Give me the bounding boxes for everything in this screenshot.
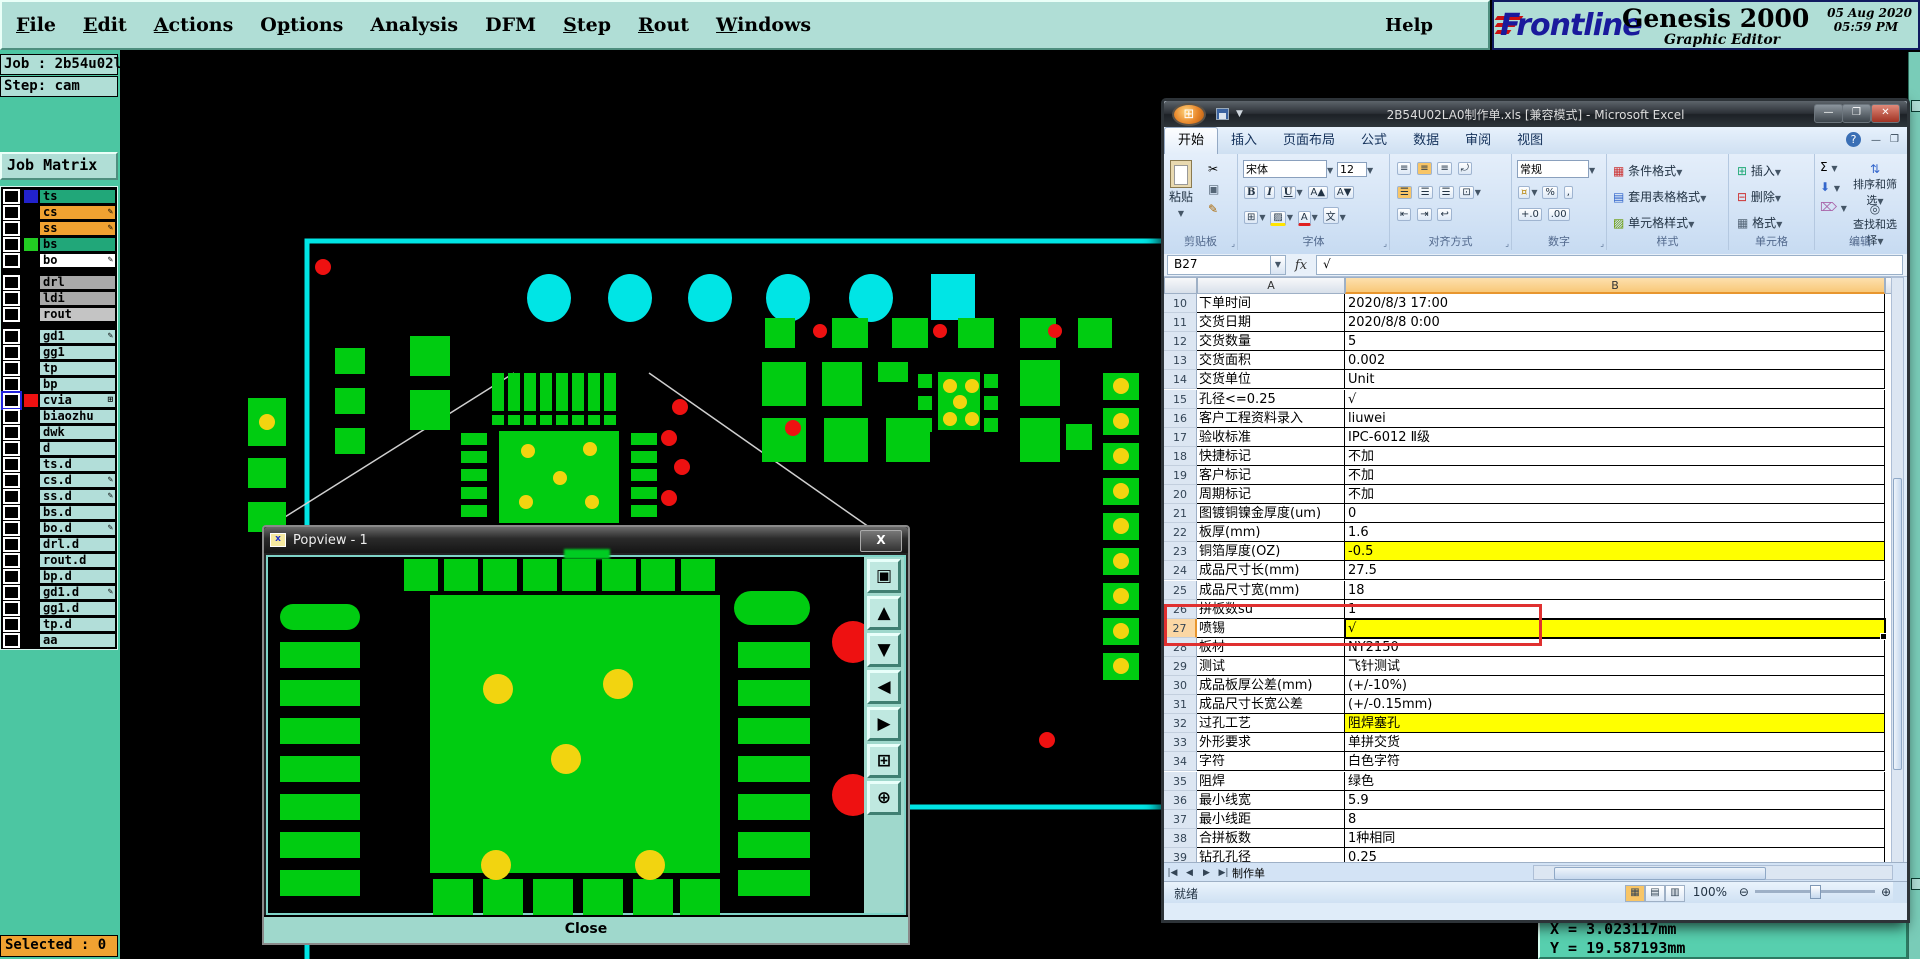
layer-swatch[interactable]	[24, 238, 38, 251]
cell-a21[interactable]: 图镀铜镍金厚度(um)	[1197, 504, 1345, 523]
comma-icon[interactable]: ,	[1564, 186, 1573, 199]
layer-checkbox[interactable]	[3, 473, 20, 488]
layer-name[interactable]: gd1.d✎	[39, 585, 116, 600]
layer-checkbox[interactable]	[3, 329, 20, 344]
layer-checkbox[interactable]	[3, 237, 20, 252]
layer-row-bp: bp	[1, 376, 117, 392]
cell-b21[interactable]: 0	[1345, 504, 1885, 523]
cell-b36[interactable]: 5.9	[1345, 791, 1885, 810]
italic-icon[interactable]: I	[1264, 186, 1275, 199]
tab-数据[interactable]: 数据	[1400, 128, 1452, 154]
popview-window: x Popview - 1 X	[262, 525, 910, 945]
align-middle-icon[interactable]: ≡	[1417, 162, 1431, 175]
frontline-brand: Frontline	[1500, 8, 1642, 43]
cell-b14[interactable]: Unit	[1345, 370, 1885, 389]
layer-swatch[interactable]	[24, 378, 38, 391]
layer-swatch[interactable]	[24, 506, 38, 519]
cell-b38[interactable]: 1种相同	[1345, 829, 1885, 848]
merge-center-icon[interactable]: ⊡	[1459, 186, 1473, 199]
cell-a16[interactable]: 客户工程资料录入	[1197, 409, 1345, 428]
row-header[interactable]: 10	[1164, 294, 1197, 313]
name-box-dropdown-icon[interactable]: ▼	[1271, 255, 1286, 275]
menu-options[interactable]: Options	[260, 14, 343, 36]
layer-row-ss: ss✎	[1, 220, 117, 236]
layer-name[interactable]: gg1.d	[39, 601, 116, 616]
layer-row-cs: cs✎	[1, 204, 117, 220]
row-header[interactable]: 33	[1164, 733, 1197, 752]
menu-windows[interactable]: Windows	[716, 14, 811, 36]
layer-row-aa: aa	[1, 632, 117, 648]
cell-a14[interactable]: 交货单位	[1197, 370, 1345, 389]
layer-swatch[interactable]	[24, 222, 38, 235]
cell-a13[interactable]: 交货面积	[1197, 351, 1345, 370]
cell-b31[interactable]: (+/-0.15mm)	[1345, 695, 1885, 714]
layer-checkbox[interactable]	[3, 553, 20, 568]
layer-checkbox[interactable]	[3, 489, 20, 504]
menu-file[interactable]: File	[16, 14, 56, 36]
layer-swatch[interactable]	[24, 190, 38, 203]
cell-b35[interactable]: 绿色	[1345, 772, 1885, 791]
format-painter-icon[interactable]: ✎	[1208, 202, 1218, 216]
cell-b12[interactable]: 5	[1345, 332, 1885, 351]
formula-input[interactable]: √	[1316, 255, 1903, 275]
layer-name[interactable]: bo.d✎	[39, 521, 116, 536]
dialog-launcher-icon[interactable]: ⌟	[1231, 239, 1235, 248]
row-header[interactable]: 12	[1164, 332, 1197, 351]
cell-b20[interactable]: 不加	[1345, 485, 1885, 504]
cell-a18[interactable]: 快捷标记	[1197, 447, 1345, 466]
layer-checkbox[interactable]	[3, 205, 20, 220]
popview-tab-marker	[564, 549, 610, 559]
decrease-indent-icon[interactable]: ⇤	[1397, 208, 1411, 221]
row-header[interactable]: 37	[1164, 810, 1197, 829]
zoom-fit-icon: ⊞	[877, 751, 891, 771]
layer-checkbox[interactable]	[3, 505, 20, 520]
align-left-icon[interactable]: ☰	[1397, 186, 1412, 199]
layer-swatch[interactable]	[24, 458, 38, 471]
layer-checkbox[interactable]	[3, 601, 20, 616]
increase-indent-icon[interactable]: ⇥	[1417, 208, 1431, 221]
layer-name[interactable]: gg1	[39, 345, 116, 360]
row-header[interactable]: 25	[1164, 581, 1197, 600]
layer-name[interactable]: ldi	[39, 291, 116, 306]
cell-a37[interactable]: 最小线距	[1197, 810, 1345, 829]
menu-rout[interactable]: Rout	[638, 14, 689, 36]
tab-插入[interactable]: 插入	[1218, 128, 1270, 154]
cell-a22[interactable]: 板厚(mm)	[1197, 523, 1345, 542]
layer-name[interactable]: bs	[39, 237, 116, 252]
layer-swatch[interactable]	[24, 410, 38, 423]
cell-styles-button[interactable]: ▨ 单元格样式▼	[1613, 214, 1694, 231]
tab-审阅[interactable]: 审阅	[1452, 128, 1504, 154]
vertical-scroll-thumb[interactable]	[1893, 478, 1902, 770]
number-format-combo[interactable]: 常规	[1517, 160, 1589, 178]
layer-name[interactable]: cvia⊞	[39, 393, 116, 408]
ribbon-group-alignment: ≡ ≡ ≡ ⤾ ☰ ☰ ☰ ⊡▼ ⇤ ⇥ ↩ 对齐方式 ⌟	[1390, 154, 1512, 250]
row-header[interactable]: 22	[1164, 523, 1197, 542]
autosum-icon[interactable]: Σ ▼	[1820, 160, 1838, 174]
layer-name[interactable]: tp	[39, 361, 116, 376]
row-header[interactable]: 16	[1164, 409, 1197, 428]
layer-name[interactable]: biaozhu	[39, 409, 116, 424]
row-header[interactable]: 11	[1164, 313, 1197, 332]
pan-up-button[interactable]: ▲	[867, 596, 901, 630]
pan-left-button[interactable]: ◀	[867, 670, 901, 704]
layer-name[interactable]: ts.d	[39, 457, 116, 472]
row-header[interactable]: 29	[1164, 657, 1197, 676]
row-header[interactable]: 38	[1164, 829, 1197, 848]
copy-icon[interactable]: ▣	[1208, 182, 1219, 196]
cell-b29[interactable]: 飞针测试	[1345, 657, 1885, 676]
time-label: 05:59 PM	[1834, 20, 1898, 34]
ribbon: 粘贴▼ ✂ ▣ ✎ 剪贴板 ⌟ 宋体▼ 12▼ B I U▼ A▲	[1164, 154, 1907, 254]
row-header[interactable]: 23	[1164, 542, 1197, 561]
layer-swatch[interactable]	[24, 362, 38, 375]
menu-help[interactable]: Help	[1385, 15, 1433, 36]
zoom-fit-button[interactable]: ⊞	[867, 744, 901, 778]
left-pads	[248, 336, 450, 532]
cell-a33[interactable]: 外形要求	[1197, 733, 1345, 752]
fx-icon[interactable]: fx	[1286, 258, 1316, 273]
layer-checkbox[interactable]	[3, 457, 20, 472]
cell-a19[interactable]: 客户标记	[1197, 466, 1345, 485]
row-header[interactable]: 21	[1164, 504, 1197, 523]
pan-right-button[interactable]: ▶	[867, 707, 901, 741]
strip-button[interactable]	[1911, 100, 1920, 112]
row-header[interactable]: 36	[1164, 791, 1197, 810]
layer-swatch[interactable]	[24, 254, 38, 267]
cell-b25[interactable]: 18	[1345, 581, 1885, 600]
phonetic-icon[interactable]: 文	[1323, 207, 1339, 224]
layer-name[interactable]: bs.d	[39, 505, 116, 520]
layer-row-drl-d: drl.d	[1, 536, 117, 552]
maximize-button[interactable]: ❐	[1842, 104, 1871, 123]
layer-swatch[interactable]	[24, 330, 38, 343]
job-matrix-button[interactable]: Job Matrix ...	[0, 152, 118, 180]
insert-cells-button[interactable]: ⊞ 插入▼	[1737, 162, 1781, 179]
align-center-icon[interactable]: ☰	[1418, 186, 1433, 199]
format-as-table-button[interactable]: ▤ 套用表格格式▼	[1613, 188, 1706, 205]
layer-swatch[interactable]	[24, 618, 38, 631]
pencil-icon: ✎	[108, 476, 113, 485]
zoom-out-icon[interactable]: ⊖	[1739, 885, 1749, 899]
layer-name[interactable]: tp.d	[39, 617, 116, 632]
popview-close-button[interactable]: X	[860, 530, 902, 552]
cell-b17[interactable]: IPC-6012 Ⅱ级	[1345, 428, 1885, 447]
cell-a23[interactable]: 铜箔厚度(OZ)	[1197, 542, 1345, 561]
cell-a17[interactable]: 验收标准	[1197, 428, 1345, 447]
dialog-launcher-icon[interactable]: ⌟	[1505, 239, 1509, 248]
layer-checkbox[interactable]	[3, 189, 20, 204]
layer-name[interactable]: dwk	[39, 425, 116, 440]
layer-name[interactable]: d	[39, 441, 116, 456]
layer-name[interactable]: aa	[39, 633, 116, 648]
layer-name[interactable]: gd1✎	[39, 329, 116, 344]
name-box[interactable]: B27	[1167, 255, 1271, 275]
layer-swatch[interactable]	[24, 554, 38, 567]
ribbon-group-font: 宋体▼ 12▼ B I U▼ A▲ A▼ ⊞▼ ▨▼ A▼ 文▼ 字体 ⌟	[1238, 154, 1390, 250]
page-break-view-icon[interactable]: ▥	[1665, 885, 1685, 902]
tab-页面布局[interactable]: 页面布局	[1270, 128, 1348, 154]
menu-actions[interactable]: Actions	[154, 14, 234, 36]
layer-name[interactable]: bp.d	[39, 569, 116, 584]
font-name-combo[interactable]: 宋体	[1243, 160, 1327, 178]
cell-b22[interactable]: 1.6	[1345, 523, 1885, 542]
menu-edit[interactable]: Edit	[83, 14, 127, 36]
layer-checkbox[interactable]	[3, 409, 20, 424]
zoom-in-icon[interactable]: ⊕	[1881, 885, 1891, 899]
layer-swatch[interactable]	[24, 538, 38, 551]
cell-b34[interactable]: 白色字符	[1345, 752, 1885, 771]
layer-checkbox[interactable]	[3, 633, 20, 648]
sheet-nav-button[interactable]: |◀	[1164, 868, 1181, 878]
select-all-corner[interactable]	[1164, 277, 1197, 294]
layer-swatch[interactable]	[24, 426, 38, 439]
delete-cells-button[interactable]: ⊟ 删除▼	[1737, 188, 1781, 205]
menu-analysis[interactable]: Analysis	[370, 14, 458, 36]
font-size-combo[interactable]: 12	[1337, 162, 1367, 177]
layer-checkbox[interactable]	[3, 425, 20, 440]
decrease-decimal-icon[interactable]: .00	[1548, 208, 1570, 221]
row-header[interactable]: 35	[1164, 772, 1197, 791]
step-label: Step: cam	[0, 76, 118, 97]
layer-swatch[interactable]	[24, 346, 38, 359]
layer-swatch[interactable]	[24, 292, 38, 305]
popview-title: Popview - 1	[293, 533, 368, 548]
cell-a12[interactable]: 交货数量	[1197, 332, 1345, 351]
clear-icon[interactable]: ⌦ ▼	[1820, 200, 1847, 214]
cell-a25[interactable]: 成品尺寸宽(mm)	[1197, 581, 1345, 600]
tab-视图[interactable]: 视图	[1504, 128, 1556, 154]
coordinate-y: Y = 19.587193mm	[1550, 939, 1906, 958]
cell-a20[interactable]: 周期标记	[1197, 485, 1345, 504]
layer-swatch[interactable]	[24, 442, 38, 455]
shrink-font-icon[interactable]: A▼	[1334, 186, 1355, 199]
zoom-center-button[interactable]: ⊕	[867, 781, 901, 815]
layer-checkbox[interactable]	[3, 537, 20, 552]
close-button[interactable]: ✕	[1871, 104, 1900, 123]
row-header[interactable]: 18	[1164, 447, 1197, 466]
row-header[interactable]: 13	[1164, 351, 1197, 370]
sheet-nav-button[interactable]: ◀	[1181, 868, 1198, 878]
increase-decimal-icon[interactable]: +.0	[1518, 208, 1542, 221]
cell-a11[interactable]: 交货日期	[1197, 313, 1345, 332]
zoom-slider-thumb[interactable]	[1810, 885, 1821, 899]
border-icon[interactable]: ⊞	[1244, 211, 1258, 224]
formula-bar: B27 ▼ fx √	[1164, 254, 1907, 277]
layer-name[interactable]: bo✎	[39, 253, 116, 268]
cell-b37[interactable]: 8	[1345, 810, 1885, 829]
layer-name[interactable]: ts	[39, 189, 116, 204]
grow-font-icon[interactable]: A▲	[1308, 186, 1329, 199]
layer-name[interactable]: bp	[39, 377, 116, 392]
window-minimize-icon[interactable]: —	[1871, 135, 1881, 146]
format-cells-button[interactable]: ▦ 格式▼	[1737, 214, 1782, 231]
layer-swatch[interactable]	[24, 490, 38, 503]
layer-name[interactable]: rout	[39, 307, 116, 322]
layer-checkbox[interactable]	[3, 361, 20, 376]
page-layout-view-icon[interactable]: ▤	[1645, 885, 1665, 902]
layer-checkbox[interactable]	[3, 585, 20, 600]
popview-canvas[interactable]: ▣▲▼◀▶⊞⊕	[266, 555, 906, 915]
layer-name[interactable]: ss✎	[39, 221, 116, 236]
layer-swatch[interactable]	[24, 276, 38, 289]
zoom-level[interactable]: 100%	[1693, 885, 1727, 899]
layer-name[interactable]: drl.d	[39, 537, 116, 552]
fill-color-icon[interactable]: ▨	[1270, 211, 1285, 226]
horizontal-scrollbar[interactable]	[1533, 865, 1893, 880]
layer-swatch[interactable]	[24, 522, 38, 535]
layer-swatch[interactable]	[24, 308, 38, 321]
new-window-button[interactable]: ▣	[867, 559, 901, 593]
zoom-slider[interactable]	[1755, 890, 1875, 893]
menu-dfm[interactable]: DFM	[485, 14, 536, 36]
popview-close-bar[interactable]: Close	[264, 915, 908, 943]
accounting-format-icon[interactable]: ¤	[1518, 186, 1530, 199]
cell-b18[interactable]: 不加	[1345, 447, 1885, 466]
row-header[interactable]: 15	[1164, 390, 1197, 409]
tab-开始[interactable]: 开始	[1164, 127, 1218, 154]
cell-b24[interactable]: 27.5	[1345, 561, 1885, 580]
row-header[interactable]: 30	[1164, 676, 1197, 695]
conditional-format-button[interactable]: ▦ 条件格式▼	[1613, 162, 1682, 179]
row-header[interactable]: 32	[1164, 714, 1197, 733]
cell-b23[interactable]: -0.5	[1345, 542, 1885, 561]
wrap-text-icon[interactable]: ↩	[1437, 208, 1451, 221]
row-header[interactable]: 34	[1164, 752, 1197, 771]
bold-icon[interactable]: B	[1244, 186, 1258, 199]
pan-down-button[interactable]: ▼	[867, 633, 901, 667]
row-header[interactable]: 31	[1164, 695, 1197, 714]
resize-grip[interactable]	[1893, 882, 1907, 903]
layer-name[interactable]: cs.d✎	[39, 473, 116, 488]
cell-a38[interactable]: 合拼板数	[1197, 829, 1345, 848]
layer-row-drl: drl	[1, 274, 117, 290]
worksheet-grid[interactable]: 10下单时间2020/8/3 17:0011交货日期2020/8/8 0:001…	[1164, 294, 1897, 876]
red-annotation-box	[1164, 604, 1542, 646]
layer-row-dwk: dwk	[1, 424, 117, 440]
layer-checkbox[interactable]	[3, 441, 20, 456]
layer-name[interactable]: ss.d✎	[39, 489, 116, 504]
layer-swatch[interactable]	[24, 206, 38, 219]
paste-button[interactable]: 粘贴▼	[1168, 160, 1194, 219]
fill-icon[interactable]: ⬇ ▼	[1820, 180, 1840, 194]
layer-checkbox[interactable]	[3, 291, 20, 306]
via-pad-column-holes	[1113, 378, 1129, 674]
cell-b30[interactable]: (+/-10%)	[1345, 676, 1885, 695]
layer-checkbox[interactable]	[3, 393, 20, 408]
cell-a29[interactable]: 测试	[1197, 657, 1345, 676]
row-header[interactable]: 14	[1164, 370, 1197, 389]
row-header[interactable]: 20	[1164, 485, 1197, 504]
orientation-icon[interactable]: ⤾	[1458, 162, 1472, 175]
minimize-button[interactable]: —	[1814, 104, 1843, 123]
layer-checkbox[interactable]	[3, 307, 20, 322]
cell-b11[interactable]: 2020/8/8 0:00	[1345, 313, 1885, 332]
cell-a35[interactable]: 阻焊	[1197, 772, 1345, 791]
layer-row-tp-d: tp.d	[1, 616, 117, 632]
layer-checkbox[interactable]	[3, 345, 20, 360]
percent-icon[interactable]: %	[1542, 186, 1558, 199]
layer-checkbox[interactable]	[3, 253, 20, 268]
table-row: 31成品尺寸长宽公差(+/-0.15mm)	[1164, 695, 1897, 714]
cell-a24[interactable]: 成品尺寸长(mm)	[1197, 561, 1345, 580]
cell-b33[interactable]: 单拼交货	[1345, 733, 1885, 752]
font-color-icon[interactable]: A	[1298, 211, 1311, 226]
sheet-nav-button[interactable]: ▶|	[1215, 868, 1232, 878]
layer-swatch[interactable]	[24, 474, 38, 487]
layer-checkbox[interactable]	[3, 221, 20, 236]
dialog-launcher-icon[interactable]: ⌟	[1600, 239, 1604, 248]
cell-a32[interactable]: 过孔工艺	[1197, 714, 1345, 733]
layer-row-gd1-d: gd1.d✎	[1, 584, 117, 600]
cell-a36[interactable]: 最小线宽	[1197, 791, 1345, 810]
layer-name[interactable]: drl	[39, 275, 116, 290]
row-header[interactable]: 19	[1164, 466, 1197, 485]
strip-button[interactable]	[1911, 878, 1920, 890]
table-row: 16客户工程资料录入liuwei	[1164, 409, 1897, 428]
pan-up-icon: ▲	[877, 603, 890, 623]
cell-b32[interactable]: 阻焊塞孔	[1345, 714, 1885, 733]
cell-b10[interactable]: 2020/8/3 17:00	[1345, 294, 1885, 313]
layer-swatch[interactable]	[24, 634, 38, 647]
underline-icon[interactable]: U	[1281, 186, 1296, 199]
layer-name[interactable]: cs✎	[39, 205, 116, 220]
cell-b15[interactable]: √	[1345, 390, 1885, 409]
dialog-launcher-icon[interactable]: ⌟	[1383, 239, 1387, 248]
vertical-scrollbar[interactable]	[1891, 277, 1904, 876]
layer-checkbox[interactable]	[3, 617, 20, 632]
cell-b16[interactable]: liuwei	[1345, 409, 1885, 428]
layer-checkbox[interactable]	[3, 569, 20, 584]
excel-title-bar[interactable]: ⊞ ▼ 2B54U02LA0制作单.xls [兼容模式] - Microsoft…	[1164, 101, 1907, 127]
tab-公式[interactable]: 公式	[1348, 128, 1400, 154]
sheet-nav-button[interactable]: ▶	[1198, 868, 1215, 878]
horizontal-scroll-thumb[interactable]	[1554, 867, 1766, 880]
column-header-a[interactable]: A	[1197, 277, 1345, 294]
window-restore-icon[interactable]: ❐	[1890, 134, 1899, 145]
layer-swatch[interactable]	[24, 394, 38, 407]
layer-swatch[interactable]	[24, 586, 38, 599]
cell-a31[interactable]: 成品尺寸长宽公差	[1197, 695, 1345, 714]
layer-name[interactable]: rout.d	[39, 553, 116, 568]
cell-a10[interactable]: 下单时间	[1197, 294, 1345, 313]
align-bottom-icon[interactable]: ≡	[1437, 162, 1451, 175]
column-header-b[interactable]: B	[1345, 277, 1885, 294]
menu-step[interactable]: Step	[563, 14, 611, 36]
layer-checkbox[interactable]	[3, 275, 20, 290]
cut-icon[interactable]: ✂	[1208, 162, 1218, 176]
cell-a30[interactable]: 成品板厚公差(mm)	[1197, 676, 1345, 695]
layer-swatch[interactable]	[24, 602, 38, 615]
layer-swatch[interactable]	[24, 570, 38, 583]
layer-row-bp-d: bp.d	[1, 568, 117, 584]
cell-b19[interactable]: 不加	[1345, 466, 1885, 485]
table-row: 34字符白色字符	[1164, 752, 1897, 771]
normal-view-icon[interactable]: ▦	[1625, 885, 1645, 902]
align-top-icon[interactable]: ≡	[1397, 162, 1411, 175]
row-header[interactable]: 24	[1164, 561, 1197, 580]
sheet-tab-worksheet[interactable]: 制作单	[1232, 865, 1265, 881]
cell-b13[interactable]: 0.002	[1345, 351, 1885, 370]
layer-checkbox[interactable]	[3, 377, 20, 392]
cell-a15[interactable]: 孔径<=0.25	[1197, 390, 1345, 409]
cell-a34[interactable]: 字符	[1197, 752, 1345, 771]
layer-checkbox[interactable]	[3, 521, 20, 536]
row-header[interactable]: 17	[1164, 428, 1197, 447]
align-right-icon[interactable]: ☰	[1439, 186, 1454, 199]
help-icon[interactable]: ?	[1846, 132, 1861, 147]
